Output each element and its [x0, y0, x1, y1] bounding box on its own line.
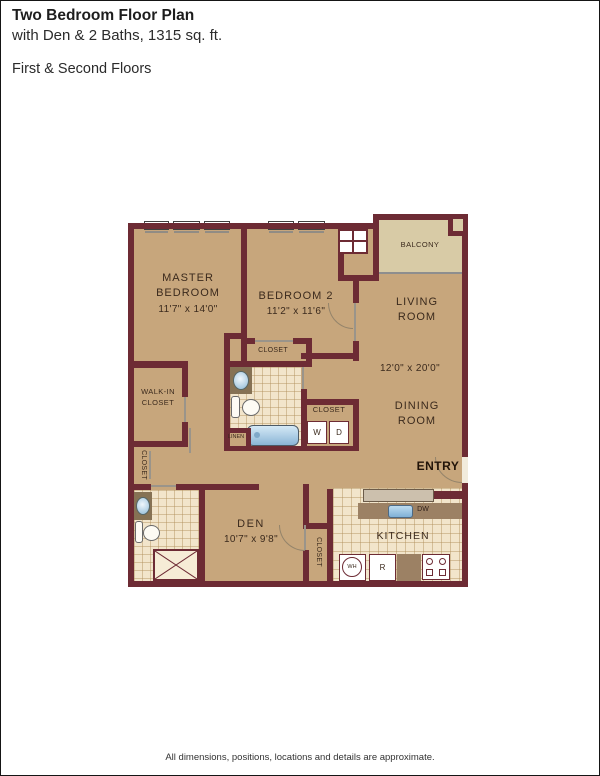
- kitchen-counter: [397, 554, 421, 581]
- bath1-toilet-tank-icon: [231, 396, 240, 418]
- master-bedroom-label: BEDROOM: [138, 287, 238, 299]
- wall-bath1-top: [224, 361, 312, 367]
- dishwasher-label: DW: [412, 506, 434, 514]
- kitchen-closet-label: CLOSET: [312, 527, 322, 577]
- wall-hall: [224, 446, 359, 451]
- window-sill: [145, 231, 168, 233]
- floor-plan-page: Two Bedroom Floor Plan with Den & 2 Bath…: [0, 0, 600, 776]
- dining-room-label: ROOM: [377, 415, 457, 427]
- wall-living-left: [353, 281, 359, 303]
- wall-bedroom-divider: [241, 229, 247, 338]
- master-bedroom-label: MASTER: [138, 272, 238, 284]
- wall-kitchen-closet-right: [327, 529, 333, 581]
- balcony-column-core: [453, 219, 463, 231]
- living-room-label: ROOM: [377, 311, 457, 323]
- range-icon: [422, 554, 450, 580]
- master-hall-door: [189, 428, 191, 453]
- hall-closet-label: CLOSET: [303, 406, 355, 414]
- window-sill: [299, 231, 324, 233]
- wall-hall-bottom: [176, 484, 259, 490]
- bath2-door: [151, 485, 176, 487]
- page-subtitle: with Den & 2 Baths, 1315 sq. ft.: [12, 27, 222, 44]
- den-dimensions: 10'7" x 9'8": [204, 534, 298, 545]
- wall-den-right: [303, 484, 309, 524]
- master-bedroom-dimensions: 11'7" x 14'0": [136, 304, 240, 315]
- disclaimer-text: All dimensions, positions, locations and…: [1, 752, 599, 763]
- wall-bottom: [128, 581, 468, 587]
- shower-icon: [153, 549, 199, 581]
- hall-closet-door: [149, 451, 151, 479]
- bath1-toilet-bowl-icon: [242, 399, 260, 416]
- left-closet-label: CLOSET: [137, 440, 147, 490]
- kitchen-label: KITCHEN: [361, 531, 445, 543]
- entry-label: ENTRY: [406, 460, 470, 473]
- living-dining-dimensions: 12'0" x 20'0": [358, 363, 462, 374]
- refrigerator-label: R: [369, 554, 396, 581]
- bedroom2-closet-door: [255, 340, 293, 342]
- living-room-label: LIVING: [377, 296, 457, 308]
- bath2-sink-icon: [136, 497, 150, 515]
- wall-right: [462, 483, 468, 587]
- wall-entry-stub: [434, 491, 462, 499]
- wall-hall-south: [301, 353, 359, 359]
- bedroom2-door: [354, 303, 356, 341]
- bathtub-drain: [254, 432, 260, 438]
- window-sill: [269, 231, 293, 233]
- kitchen-bar-counter: [363, 489, 434, 502]
- dining-room-label: DINING: [377, 400, 457, 412]
- wall-balcony-left: [373, 214, 379, 278]
- walk-in-closet-label: WALK-IN: [128, 388, 188, 396]
- kitchen-sink-icon: [388, 505, 413, 518]
- bath1-door: [302, 367, 304, 389]
- window-sill: [205, 231, 229, 233]
- bedroom2-dimensions: 11'2" x 11'6": [244, 306, 348, 317]
- linen-closet-label: LINEN: [222, 434, 250, 440]
- window-sill: [174, 231, 199, 233]
- water-heater-label: WH: [342, 557, 362, 577]
- bedroom2-closet-label: CLOSET: [246, 347, 300, 355]
- den-label: DEN: [206, 518, 296, 530]
- wall-den-right: [303, 550, 309, 581]
- wall-right: [462, 214, 468, 457]
- wall-top: [128, 223, 379, 229]
- wall-walkin-top: [128, 361, 188, 368]
- page-title: Two Bedroom Floor Plan: [12, 7, 194, 25]
- balcony-slider-door: [379, 272, 462, 274]
- balcony-label: BALCONY: [385, 241, 455, 249]
- washer-label: W: [307, 421, 327, 444]
- dryer-label: D: [329, 421, 349, 444]
- window-mullion: [340, 240, 366, 242]
- bath2-toilet-bowl-icon: [143, 525, 160, 541]
- floors-label: First & Second Floors: [12, 61, 151, 77]
- bath1-sink-icon: [233, 371, 249, 390]
- bedroom2-label: BEDROOM 2: [246, 290, 346, 302]
- bath2-toilet-tank-icon: [135, 521, 143, 543]
- walk-in-closet-label: CLOSET: [128, 399, 188, 407]
